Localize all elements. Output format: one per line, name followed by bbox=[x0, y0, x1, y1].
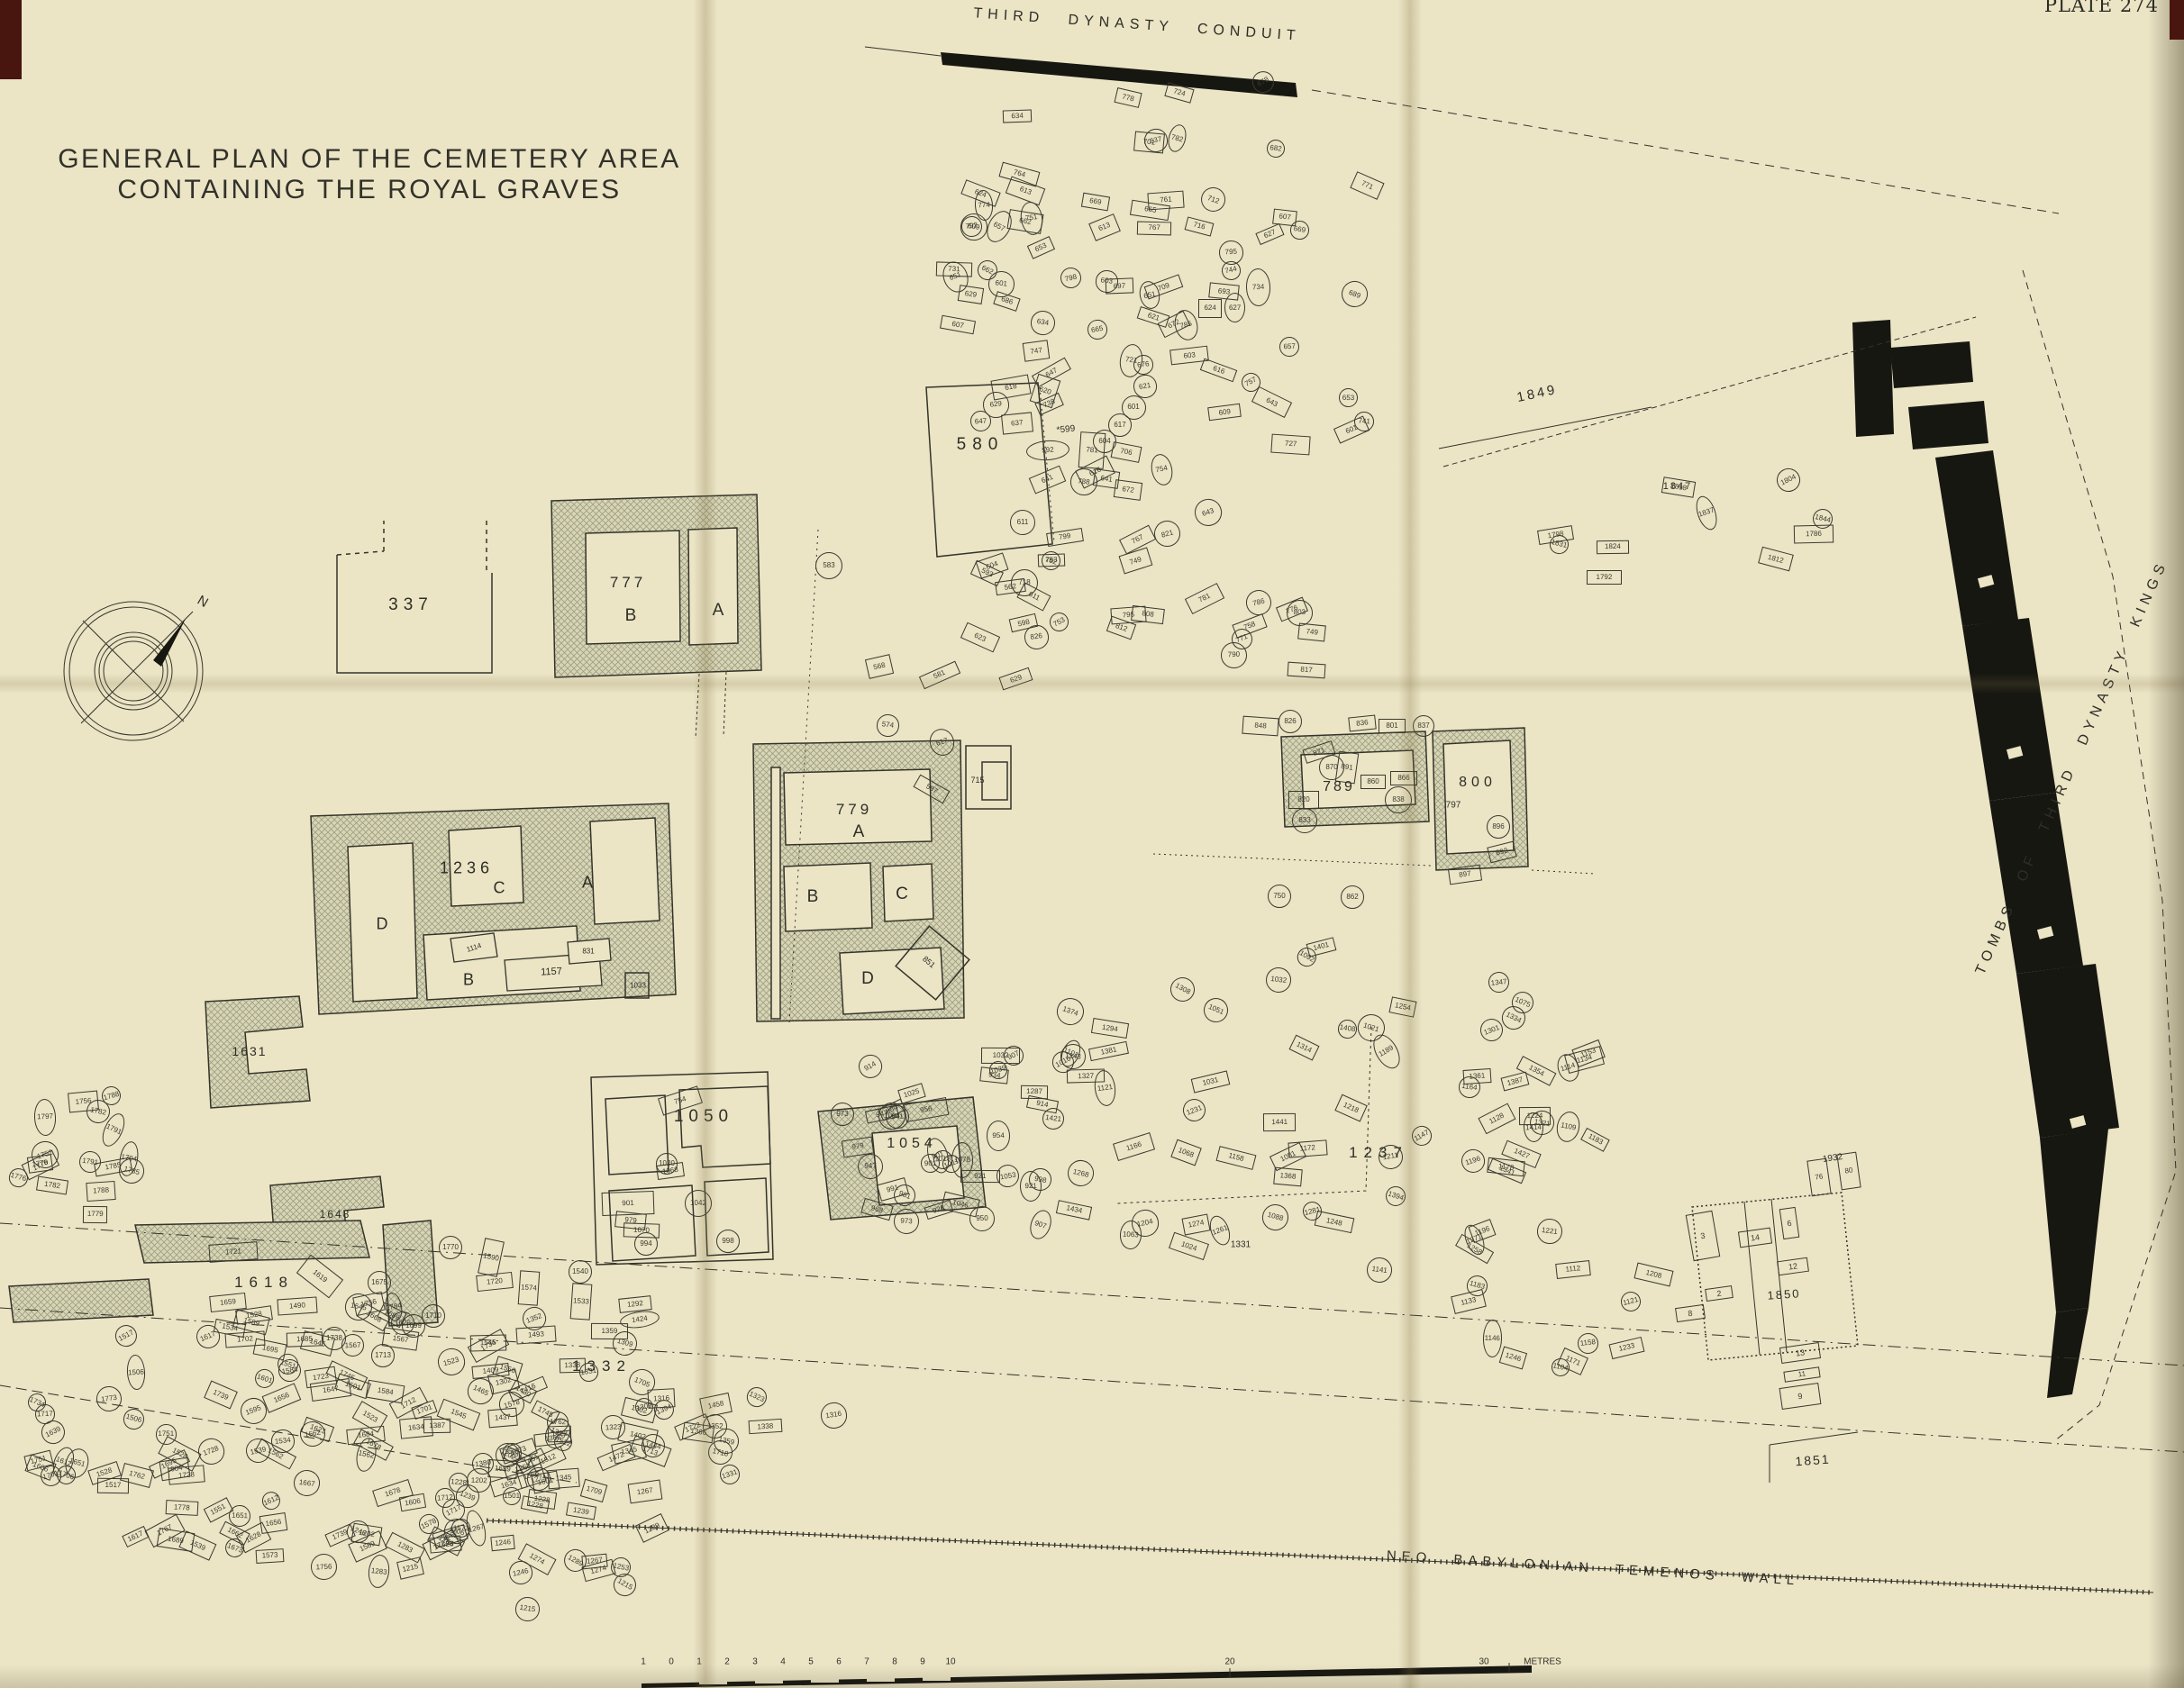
label-715: 715 bbox=[970, 776, 984, 785]
room-label-1236-b: B bbox=[463, 971, 474, 990]
grave: 1792 bbox=[1587, 570, 1622, 585]
map-title-line-1: GENERAL PLAN OF THE CEMETERY AREA bbox=[50, 144, 689, 175]
grave: 747 bbox=[1023, 340, 1051, 362]
grave: 848 bbox=[1242, 716, 1279, 737]
grave: 1786 bbox=[1794, 525, 1834, 544]
scale-tick-label: 1 bbox=[641, 1657, 646, 1667]
area-label-1618: 1618 bbox=[234, 1274, 294, 1292]
grave: 701 bbox=[1133, 132, 1165, 154]
label-831: 831 bbox=[582, 948, 594, 956]
grave: 1778 bbox=[166, 1500, 198, 1515]
grave: 973 bbox=[831, 1103, 854, 1126]
area-label-1050: 1050 bbox=[674, 1107, 733, 1127]
grave: 1713 bbox=[371, 1344, 395, 1367]
area-label-1631: 1631 bbox=[232, 1044, 267, 1058]
label-1033: 1033 bbox=[630, 982, 646, 990]
map-title: GENERAL PLAN OF THE CEMETERY AREA CONTAI… bbox=[50, 144, 689, 205]
structure-777 bbox=[551, 495, 761, 677]
grave: 634 bbox=[1003, 110, 1033, 124]
scale-bar bbox=[642, 1663, 1532, 1688]
label-1331: 1331 bbox=[1231, 1240, 1251, 1250]
binding-mark-top-left bbox=[0, 0, 22, 79]
scale-tick-label: 4 bbox=[780, 1657, 786, 1667]
grave: 838 bbox=[1385, 786, 1412, 813]
grave: 860 bbox=[1360, 775, 1386, 789]
room-label-779-c: C bbox=[896, 885, 908, 904]
grave: 1770 bbox=[439, 1236, 462, 1259]
room-label-777-b: B bbox=[625, 606, 637, 626]
scale-tick-label: 1 bbox=[696, 1657, 702, 1667]
grave: 583 bbox=[815, 552, 842, 579]
plate-number: PLATE 274 bbox=[2044, 0, 2159, 16]
grave: 801 bbox=[1379, 719, 1406, 733]
grave: 734 bbox=[1245, 268, 1270, 307]
kings-tombs-black-mass bbox=[1852, 270, 2176, 1441]
scanned-plate-page: PLATE 274 GENERAL PLAN OF THE CEMETERY A… bbox=[0, 0, 2184, 1688]
grave: 1042 bbox=[685, 1190, 712, 1217]
grave: 750 bbox=[1268, 885, 1291, 908]
grave: 1710 bbox=[422, 1304, 445, 1328]
grave: 1368 bbox=[1273, 1167, 1302, 1187]
area-label-1850: 1850 bbox=[1767, 1286, 1801, 1302]
label-599: *599 bbox=[1056, 423, 1076, 435]
grave: 1437 bbox=[487, 1407, 518, 1428]
compass-rose bbox=[64, 602, 203, 740]
area-label-337: 337 bbox=[388, 595, 433, 615]
grave: 637 bbox=[1001, 413, 1033, 435]
area-label-800: 800 bbox=[1459, 775, 1497, 791]
grave: 947 bbox=[858, 1154, 883, 1179]
grave: 1316 bbox=[648, 1389, 676, 1410]
scale-tick-label: 0 bbox=[669, 1657, 674, 1667]
grave: 826 bbox=[1279, 710, 1302, 733]
area-label-1332: 1332 bbox=[572, 1357, 632, 1375]
grave: 1387 bbox=[423, 1418, 451, 1433]
grave: 998 bbox=[716, 1230, 740, 1253]
grave: 820 bbox=[1288, 791, 1319, 809]
grave: 727 bbox=[1270, 433, 1311, 455]
room-label-777-a: A bbox=[713, 601, 724, 621]
grave: 954 bbox=[987, 1120, 1011, 1150]
grave: 697 bbox=[1106, 277, 1134, 295]
area-label-779: 779 bbox=[836, 801, 872, 819]
scale-tick-label: 30 bbox=[1479, 1657, 1488, 1667]
area-label-1237: 1237 bbox=[1349, 1144, 1408, 1162]
grave: 1338 bbox=[749, 1419, 783, 1435]
grave: 1788 bbox=[86, 1181, 117, 1202]
label-1157: 1157 bbox=[541, 966, 562, 977]
grave: 611 bbox=[1010, 510, 1035, 535]
room-label-1236-a: A bbox=[582, 874, 593, 893]
area-label-1847: 1847 bbox=[1663, 481, 1692, 492]
grave: 1327 bbox=[1066, 1069, 1105, 1084]
grave: 1573 bbox=[256, 1548, 285, 1563]
grave: 1490 bbox=[277, 1296, 317, 1315]
grave: 1540 bbox=[569, 1260, 592, 1284]
label-797: 797 bbox=[1446, 801, 1461, 811]
scale-tick-label: 5 bbox=[808, 1657, 814, 1667]
room-label-1236-d: D bbox=[377, 915, 388, 934]
grave: 1728 bbox=[168, 1466, 205, 1485]
grave: 753 bbox=[1038, 553, 1065, 567]
area-label-1236: 1236 bbox=[440, 859, 494, 878]
scale-tick-label: 2 bbox=[724, 1657, 730, 1667]
grave: 1721 bbox=[208, 1241, 258, 1263]
room-label-1236-c: C bbox=[494, 879, 505, 898]
structure-1236 bbox=[311, 803, 676, 1014]
grave: 836 bbox=[1348, 714, 1377, 731]
grave: 1070 bbox=[623, 1222, 660, 1238]
grave: 761 bbox=[1148, 190, 1185, 210]
grave: 641 bbox=[1093, 468, 1121, 489]
grave: 767 bbox=[1137, 222, 1172, 236]
scale-tick-label: 3 bbox=[752, 1657, 758, 1667]
scale-tick-label: 8 bbox=[892, 1657, 897, 1667]
room-label-779-a: A bbox=[853, 822, 865, 842]
area-label-1054: 1054 bbox=[887, 1136, 937, 1152]
grave: 1824 bbox=[1597, 540, 1629, 554]
scale-tick-label: 20 bbox=[1224, 1657, 1234, 1667]
grave: 1779 bbox=[83, 1206, 108, 1223]
grave: 1345 bbox=[547, 1468, 580, 1490]
area-label-789: 789 bbox=[1323, 779, 1355, 795]
grave: 837 bbox=[1413, 715, 1434, 737]
grave: 803 bbox=[1286, 599, 1312, 625]
grave: 1533 bbox=[570, 1283, 593, 1320]
scale-tick-label: 7 bbox=[864, 1657, 869, 1667]
grave: 817 bbox=[1288, 662, 1326, 679]
grave: 896 bbox=[1487, 815, 1510, 839]
area-label-1648: 1648 bbox=[320, 1208, 351, 1221]
room-label-779-b: B bbox=[807, 887, 819, 907]
grave: 1228 bbox=[527, 1489, 558, 1510]
grave: 862 bbox=[1341, 885, 1364, 909]
grave: 1020 bbox=[656, 1153, 678, 1175]
scale-tick-label: 10 bbox=[945, 1657, 955, 1667]
scale-tick-label: 9 bbox=[920, 1657, 925, 1667]
map-title-line-2: CONTAINING THE ROYAL GRAVES bbox=[50, 175, 689, 205]
grave: 1574 bbox=[518, 1270, 541, 1305]
grave: 624 bbox=[1198, 299, 1222, 318]
scale-tick-label: METRES bbox=[1524, 1657, 1561, 1667]
grave: 693 bbox=[1208, 282, 1240, 301]
grave: 1246 bbox=[490, 1534, 515, 1550]
grave: 1361 bbox=[1463, 1068, 1492, 1084]
grave: 921 bbox=[960, 1170, 1000, 1184]
area-label-1851: 1851 bbox=[1795, 1452, 1831, 1469]
area-label-580: 580 bbox=[957, 435, 1005, 455]
grave: 1146 bbox=[1483, 1320, 1502, 1357]
grave: 1441 bbox=[1263, 1113, 1297, 1131]
grave: 749 bbox=[1297, 622, 1326, 641]
grave: 833 bbox=[1292, 808, 1317, 833]
grave: 866 bbox=[1390, 771, 1417, 785]
scale-tick-label: 6 bbox=[836, 1657, 842, 1667]
grave: 1423 bbox=[547, 1426, 571, 1442]
binding-mark-top-right bbox=[2170, 0, 2184, 40]
area-label-777: 777 bbox=[610, 574, 646, 592]
room-label-779-d: D bbox=[861, 969, 874, 989]
